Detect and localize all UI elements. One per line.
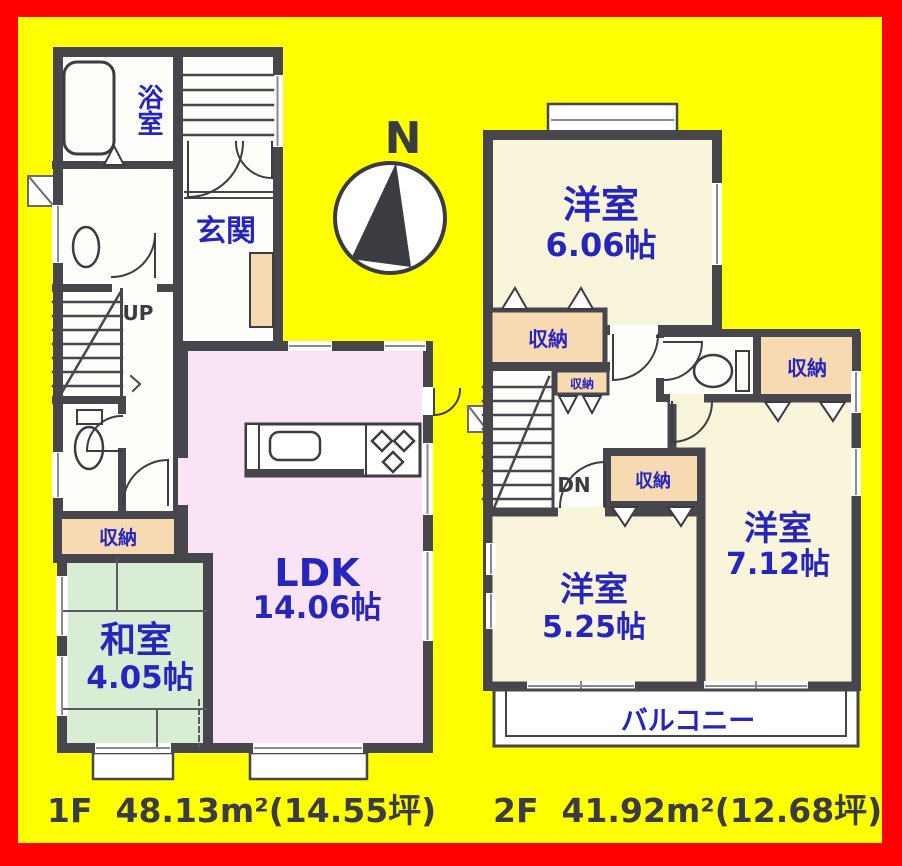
bay-window <box>548 104 677 134</box>
kitchen-sink <box>270 432 320 460</box>
japanese-room-size: 4.05帖 <box>86 660 194 696</box>
toilet-bowl-2f <box>694 355 732 387</box>
toilet-bowl-1f <box>75 427 103 469</box>
storage1-label: 収納 <box>528 327 568 351</box>
kitchen-counter <box>246 424 420 477</box>
bedroom1-label: 洋室 <box>563 183 639 227</box>
shoe-cabinet <box>250 253 273 327</box>
ldk-label: LDK <box>274 551 361 595</box>
bedroom2-size: 7.12帖 <box>726 547 830 582</box>
toilet-tank-2f <box>736 351 749 391</box>
storage3-label: 収納 <box>787 356 827 380</box>
storage2-label: 収納 <box>570 376 594 391</box>
bedroom3-door-gap <box>558 507 605 517</box>
toilet-tank-1f <box>77 410 102 424</box>
japanese-room-label: 和室 <box>100 620 172 661</box>
bedroom2-door-gap <box>670 394 704 404</box>
floor1-area-label: 1F 48.13m²(14.55坪) <box>47 791 436 830</box>
bathroom-label: 浴室 <box>133 84 163 136</box>
ldk-room <box>183 346 428 748</box>
entrance-label: 玄関 <box>196 214 256 249</box>
bedroom2-label: 洋室 <box>744 509 812 549</box>
storage4-label: 収納 <box>635 470 671 492</box>
stairs-dn-label: DN <box>557 473 590 497</box>
bedroom3-size: 5.25帖 <box>542 610 646 645</box>
bedroom3-label: 洋室 <box>560 570 628 610</box>
bedroom1-door-gap <box>610 325 658 335</box>
ldk-door-gap <box>178 458 188 505</box>
kitchen-door-gap <box>422 387 433 415</box>
floor1-exterior-vent <box>28 176 54 206</box>
stairs-up-label: UP <box>123 301 154 325</box>
balcony-label: バルコニー <box>621 706 755 737</box>
floorplan-image: 浴室 玄関 UP 収納 和室 4.05帖 LDK 14.06帖 1F 48.13… <box>0 0 902 866</box>
washbasin <box>73 227 99 267</box>
bedroom1-size: 6.06帖 <box>546 226 657 264</box>
bathtub <box>64 62 114 154</box>
floorplan-canvas: 浴室 玄関 UP 収納 和室 4.05帖 LDK 14.06帖 1F 48.13… <box>0 0 902 866</box>
storage-1f-label: 収納 <box>99 526 137 549</box>
floor2-fixtures <box>694 351 749 391</box>
north-label: N <box>385 113 422 164</box>
ldk-size: 14.06帖 <box>252 590 381 626</box>
floor2-area-label: 2F 41.92m²(12.68坪) <box>493 791 882 830</box>
